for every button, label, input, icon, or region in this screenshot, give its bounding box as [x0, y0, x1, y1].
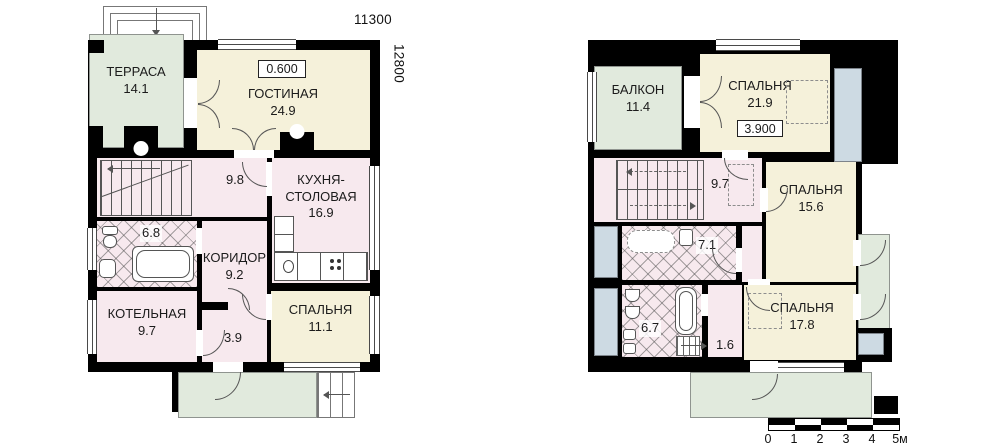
scale-segment	[821, 425, 847, 431]
scale-tick-label: 5м	[885, 432, 915, 446]
scale-segment	[873, 425, 899, 431]
floor-plan-canvas: ТЕРРАСА 14.1 0.600 ГОСТИНАЯ 24.9 9.8	[0, 0, 1000, 448]
scale-bar	[768, 418, 900, 431]
scale-bar-group: 0 1 2 3 4 5м	[0, 0, 1000, 448]
scale-tick-label: 0	[755, 432, 781, 446]
scale-tick-label: 1	[781, 432, 807, 446]
scale-segment	[769, 425, 795, 431]
scale-tick-label: 2	[807, 432, 833, 446]
scale-tick-label: 4	[859, 432, 885, 446]
scale-segment	[847, 425, 873, 431]
scale-segment	[795, 425, 821, 431]
scale-tick-label: 3	[833, 432, 859, 446]
